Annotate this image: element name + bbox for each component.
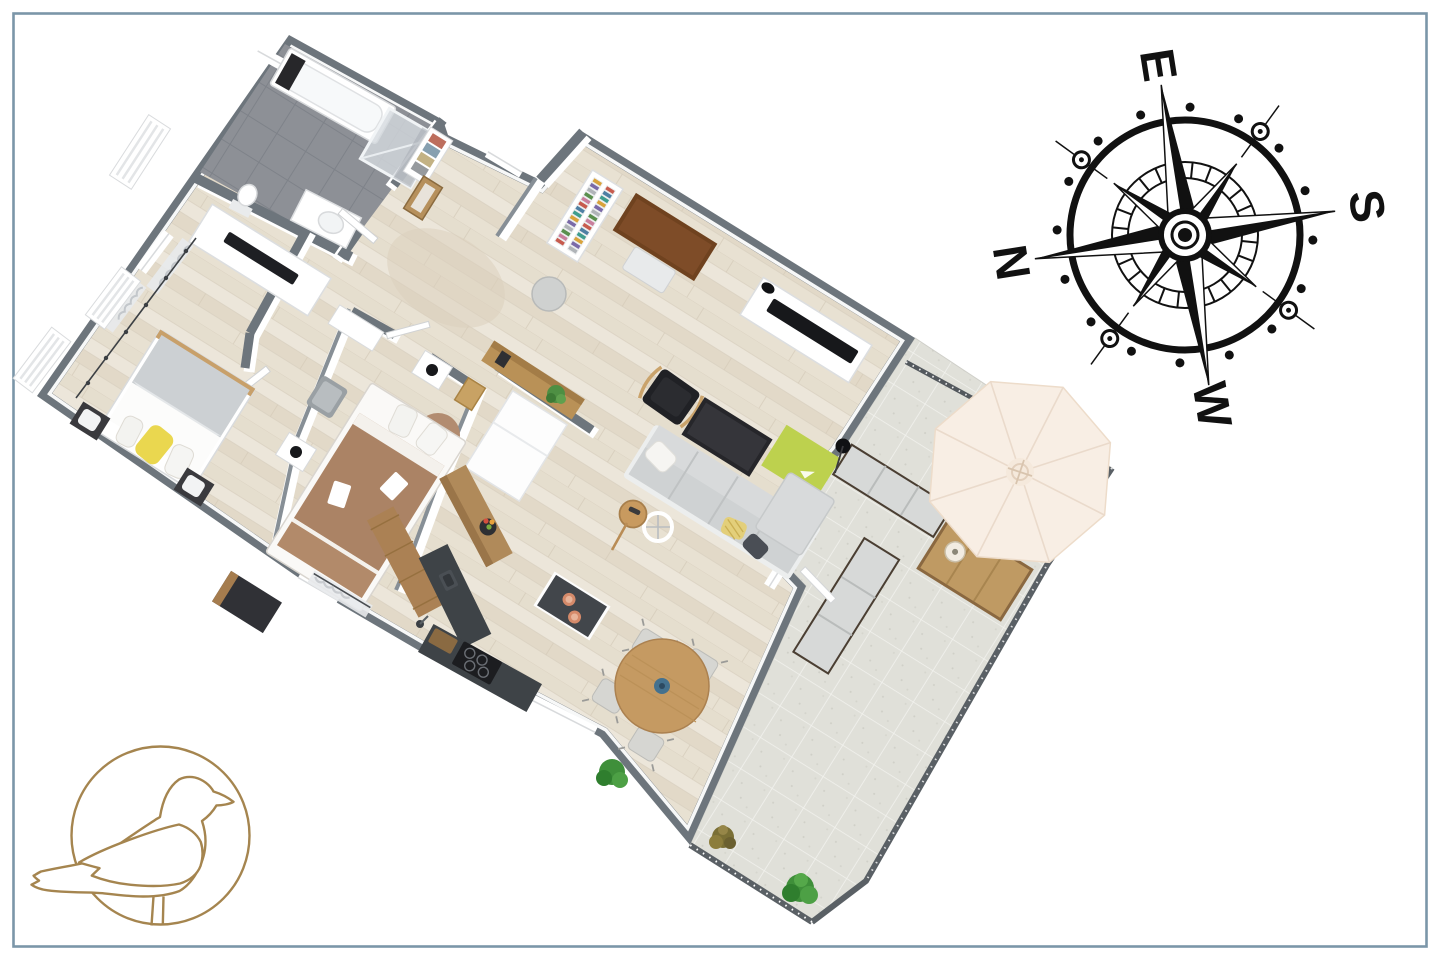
svg-text:W: W <box>1182 378 1242 432</box>
